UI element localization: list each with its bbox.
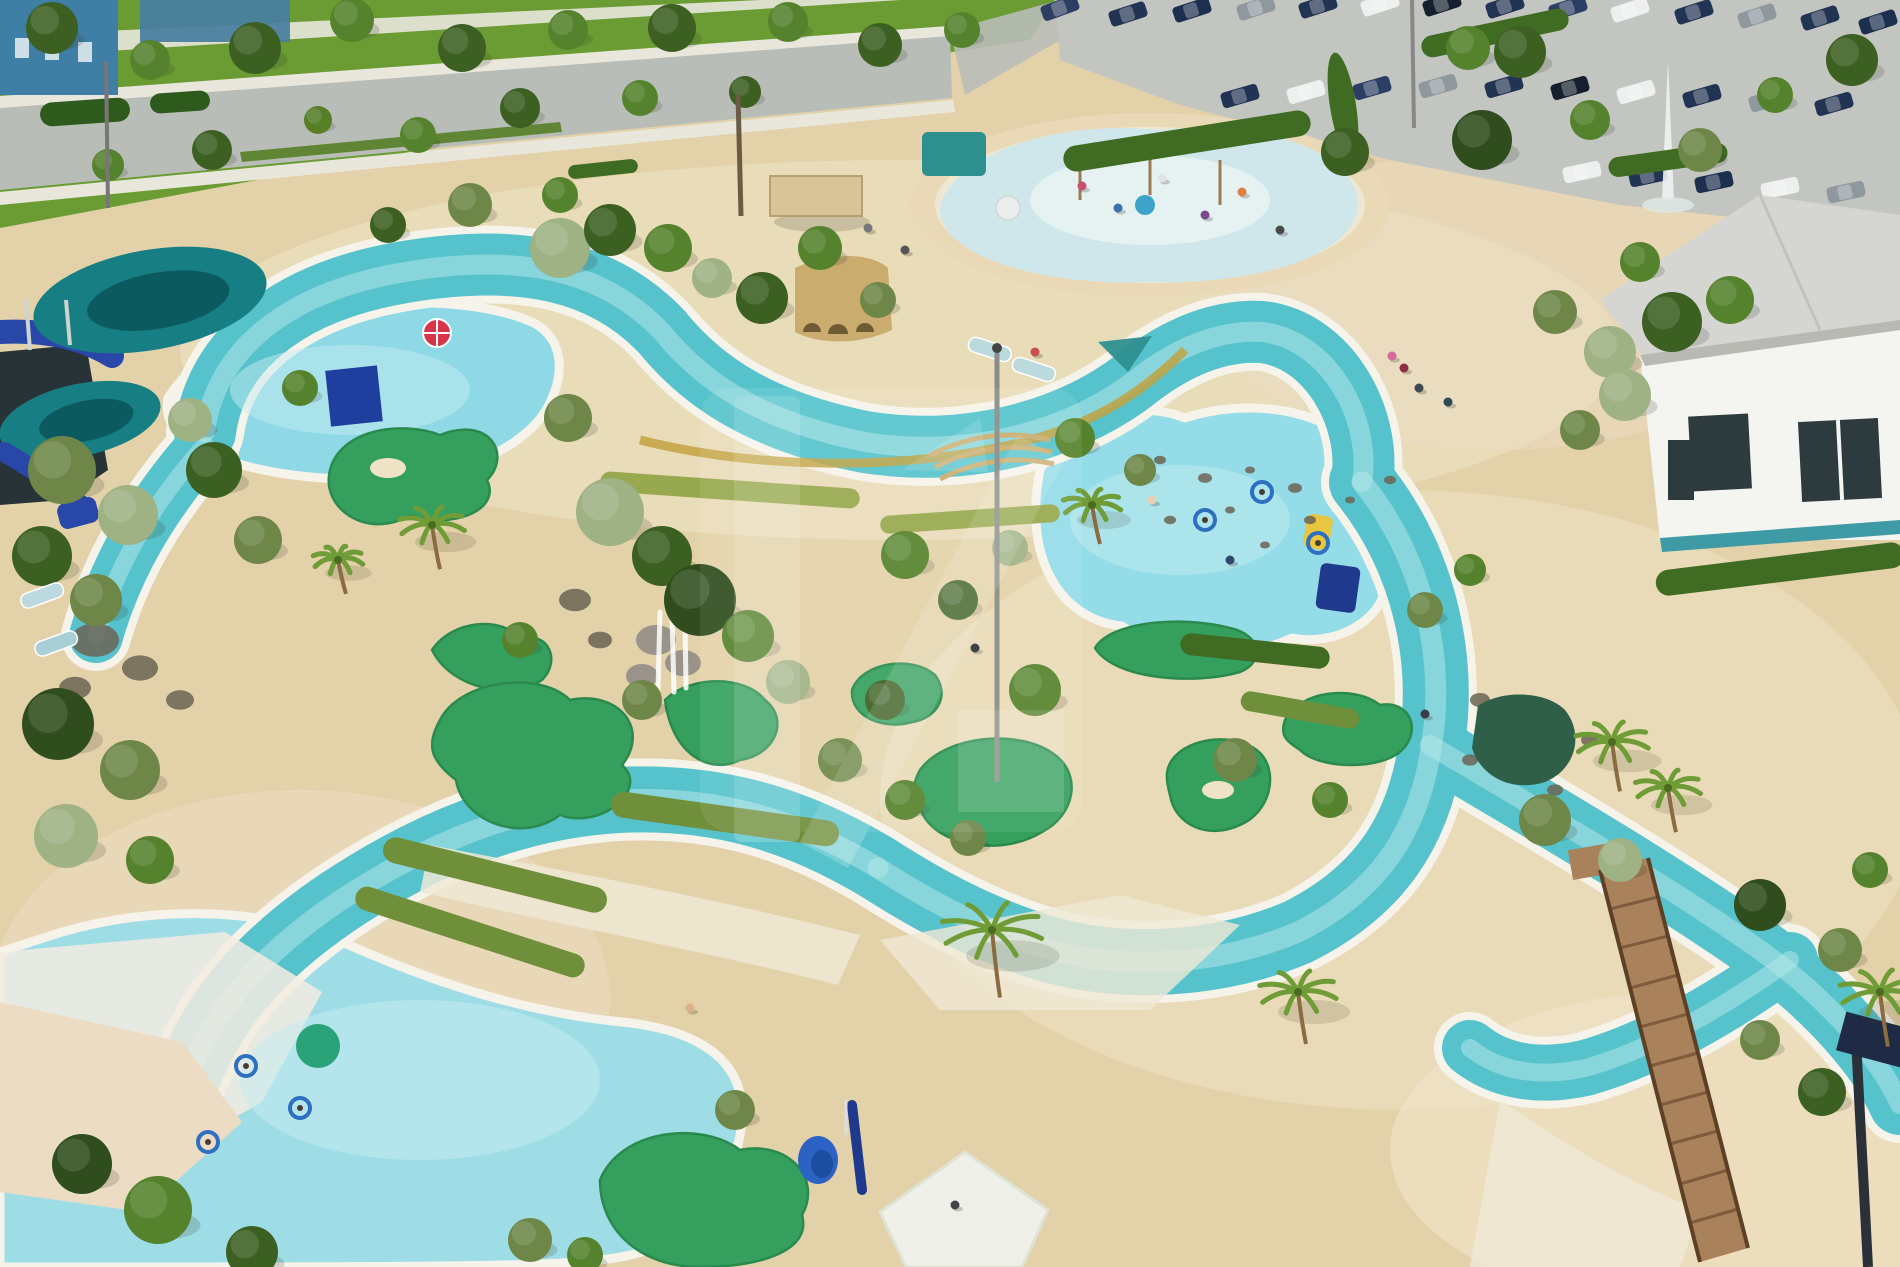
person <box>1201 211 1210 220</box>
clubhouse-window <box>1688 413 1752 491</box>
rock <box>1164 516 1176 524</box>
tree-highlight <box>1682 131 1706 155</box>
car-windshield <box>1573 164 1590 181</box>
tree-highlight <box>39 809 74 844</box>
tree-highlight <box>334 1 358 25</box>
tree-highlight <box>1498 30 1527 59</box>
person <box>901 246 910 255</box>
tree-highlight <box>195 133 217 155</box>
golf-green <box>329 428 498 524</box>
tree-highlight <box>505 625 525 645</box>
tree-highlight <box>1830 38 1859 67</box>
swimmer <box>205 1139 211 1145</box>
rock <box>1245 467 1255 474</box>
tree-highlight <box>191 446 222 477</box>
rock <box>1198 473 1212 483</box>
tree-highlight <box>503 91 525 113</box>
person <box>1148 496 1157 505</box>
tree-highlight <box>1563 413 1585 435</box>
tree-highlight <box>1855 855 1875 875</box>
tree-highlight <box>230 1230 259 1259</box>
tree-highlight <box>648 228 674 254</box>
aerial-waterpark-photo <box>0 0 1900 1267</box>
person <box>1415 384 1424 393</box>
tree-highlight <box>452 186 476 210</box>
person <box>951 1201 960 1210</box>
person <box>1276 226 1285 235</box>
tree-highlight <box>1603 373 1632 402</box>
tree-highlight <box>233 26 262 55</box>
person <box>1226 556 1235 565</box>
tree-highlight <box>133 43 155 65</box>
car-windshield <box>1771 180 1788 197</box>
tree-highlight <box>740 276 769 305</box>
tree-highlight <box>74 578 103 607</box>
pole-lamp <box>992 343 1002 353</box>
teal-circle-feature <box>296 1024 340 1068</box>
palm-crown <box>988 926 996 934</box>
tree-highlight <box>695 261 717 283</box>
tree-highlight <box>1315 785 1335 805</box>
person <box>1421 710 1430 719</box>
tree-highlight <box>1738 883 1767 912</box>
tree-highlight <box>625 83 645 103</box>
splash-feature <box>1135 195 1155 215</box>
tree-highlight <box>1217 741 1241 765</box>
watermark-block <box>958 710 1064 812</box>
tree-highlight <box>512 1221 536 1245</box>
pool-highlight <box>240 1000 600 1160</box>
rock <box>1345 497 1355 504</box>
tree-highlight <box>1537 293 1561 317</box>
tree-highlight <box>802 229 826 253</box>
tree-highlight <box>1760 80 1780 100</box>
watermark-logo <box>700 388 1082 868</box>
tree-highlight <box>238 520 264 546</box>
building-window <box>15 38 29 58</box>
tree-highlight <box>1410 595 1430 615</box>
rock <box>71 623 119 657</box>
tree-highlight <box>1588 330 1617 359</box>
tree-highlight <box>34 441 71 478</box>
rock <box>1154 456 1166 464</box>
person <box>1114 204 1123 213</box>
tree-highlight <box>947 15 967 35</box>
palm-crown <box>428 521 436 529</box>
tree-highlight <box>1127 456 1145 474</box>
tree-highlight <box>17 531 50 564</box>
tree-highlight <box>1457 556 1475 574</box>
tree-highlight <box>285 373 305 393</box>
tree-highlight <box>582 483 619 520</box>
tree-highlight <box>442 28 468 54</box>
golf-green <box>600 1133 808 1267</box>
tree-highlight <box>105 745 138 778</box>
wood-pole <box>738 95 741 216</box>
tree-highlight <box>130 1181 167 1218</box>
tree-highlight <box>1523 798 1552 827</box>
tree-highlight <box>718 1093 740 1115</box>
tree-highlight <box>373 210 393 230</box>
tree-highlight <box>1325 132 1351 158</box>
rock <box>1304 516 1316 524</box>
tree-highlight <box>570 1240 590 1260</box>
tree-highlight <box>1710 280 1736 306</box>
rock <box>1547 784 1563 795</box>
tree-highlight <box>306 108 321 123</box>
tree-highlight <box>637 531 670 564</box>
tree-highlight <box>535 223 568 256</box>
tree-highlight <box>771 5 793 27</box>
person <box>686 1004 695 1013</box>
swimmer <box>1259 489 1265 495</box>
fountain-basin <box>1642 197 1694 213</box>
tree-highlight <box>1602 841 1626 865</box>
person <box>1031 348 1040 357</box>
tree-highlight <box>1802 1072 1828 1098</box>
person <box>1400 364 1409 373</box>
tree-highlight <box>548 398 574 424</box>
swimmer <box>1315 540 1321 546</box>
swimmer <box>1202 517 1208 523</box>
tree-highlight <box>1573 103 1595 125</box>
rock <box>1384 476 1396 484</box>
sand-trap <box>1202 781 1234 799</box>
street-pole <box>1412 0 1414 128</box>
sand-trap <box>370 458 406 478</box>
rock <box>588 632 612 649</box>
tree-highlight <box>551 13 573 35</box>
tree-highlight <box>863 285 883 305</box>
tree-highlight <box>403 120 423 140</box>
tree-highlight <box>130 840 156 866</box>
rock <box>559 589 591 611</box>
tree-highlight <box>1623 245 1645 267</box>
palm-crown <box>1608 738 1616 746</box>
tree-highlight <box>1450 29 1474 53</box>
tree-highlight <box>862 26 886 50</box>
car-windshield <box>1705 174 1722 191</box>
hedge <box>149 90 210 114</box>
pergola-roof <box>770 176 862 216</box>
tree-highlight <box>103 490 136 523</box>
dark-pond <box>1472 694 1575 785</box>
tree-highlight <box>545 180 565 200</box>
rock <box>166 690 194 710</box>
tree-highlight <box>1457 115 1490 148</box>
rock <box>1260 542 1270 549</box>
person <box>1158 174 1167 183</box>
person <box>864 224 873 233</box>
swimmer <box>297 1105 303 1111</box>
tree-highlight <box>172 401 196 425</box>
rock <box>1225 507 1235 514</box>
tree-highlight <box>1647 297 1680 330</box>
tree-highlight <box>652 8 678 34</box>
watermark-bar <box>734 396 800 842</box>
clubhouse-door <box>1668 440 1694 500</box>
chair-seat <box>811 1150 833 1178</box>
tree-highlight <box>95 151 113 169</box>
pool-equipment-cube <box>325 365 383 426</box>
white-umbrella <box>996 196 1020 220</box>
rock <box>1288 483 1302 493</box>
tree-highlight <box>732 78 750 96</box>
person <box>1238 188 1247 197</box>
tree-highlight <box>30 6 59 35</box>
person <box>1388 352 1397 361</box>
tree-highlight <box>625 683 647 705</box>
tree-highlight <box>1822 931 1846 955</box>
palm-crown <box>1876 988 1884 996</box>
palm-crown <box>1294 988 1302 996</box>
palm-crown <box>334 556 342 564</box>
palm-crown <box>1664 784 1672 792</box>
tree-highlight <box>588 208 617 237</box>
car-windshield <box>1837 184 1854 201</box>
person <box>1078 182 1087 191</box>
tree-highlight <box>57 1139 90 1172</box>
rock <box>122 655 158 680</box>
swimmer <box>243 1063 249 1069</box>
person <box>1444 398 1453 407</box>
palm-crown <box>1088 501 1096 509</box>
tree-highlight <box>28 693 68 733</box>
pool-mat-navy <box>1315 562 1361 613</box>
tree-highlight <box>1743 1023 1765 1045</box>
street-pole <box>106 62 108 208</box>
teal-canopy <box>922 132 986 176</box>
